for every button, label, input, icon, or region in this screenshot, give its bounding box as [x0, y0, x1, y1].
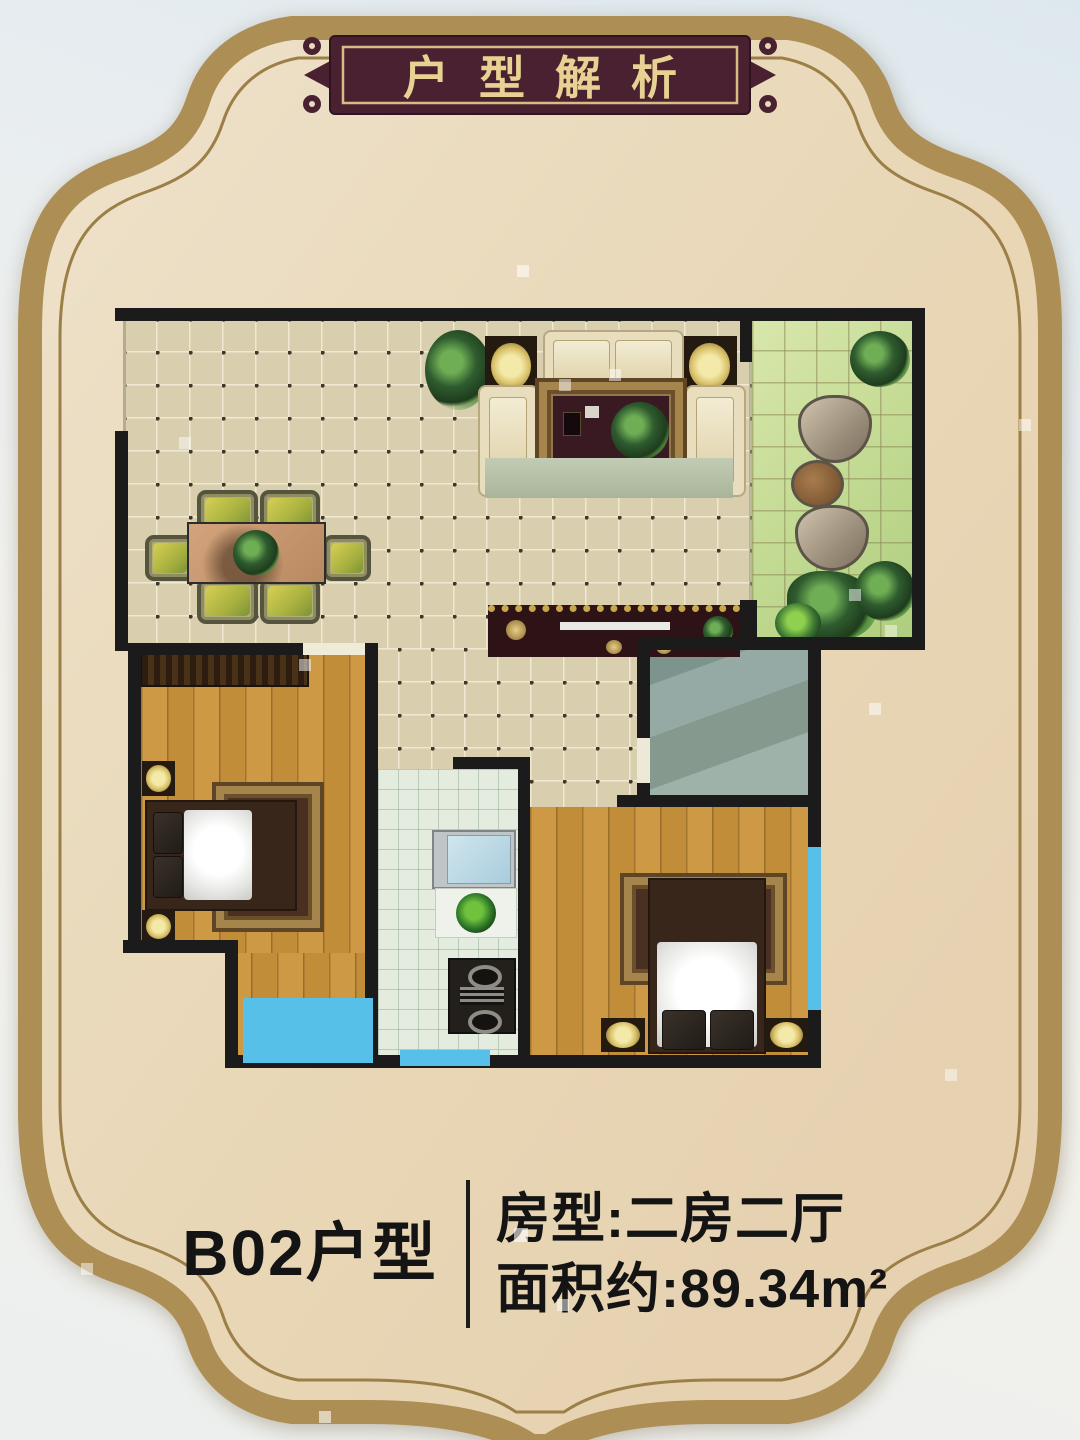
unit-specs: 房型:二房二厅 面积约:89.34m² [496, 1184, 888, 1324]
balcony-plants-icon [855, 561, 915, 621]
wall-balcony-left-stub-bottom [740, 600, 757, 637]
balcony-tree-icon [850, 331, 910, 387]
room-type-label: 房型:二房二厅 [496, 1184, 888, 1254]
wall-lamp [601, 1018, 645, 1052]
window-kitchen [400, 1050, 490, 1066]
wall-lamp [142, 910, 175, 943]
wall-bedroom1-top [128, 643, 303, 655]
dining-chair [260, 578, 320, 624]
info-section: B02户型 房型:二房二厅 面积约:89.34m² [0, 1180, 1080, 1345]
wall-top [115, 308, 925, 321]
wall-lamp [765, 1018, 808, 1052]
coffee-table-plant-icon [611, 402, 669, 460]
coffee-table-items [563, 412, 581, 436]
wall-balcony-bottom [637, 637, 925, 650]
kitchen-sink [432, 830, 516, 889]
wall-bathroom-left-upper [637, 648, 650, 738]
room-bathroom [637, 648, 808, 795]
photo-of-floorplan-card: 户型解析 [0, 0, 1080, 1440]
bed-2 [648, 878, 766, 1054]
window-bedroom1 [243, 998, 373, 1063]
tv-screen [560, 622, 670, 630]
wall-bedroom2-right-lower [808, 1010, 821, 1068]
dining-chair [197, 578, 258, 624]
centerpiece-plant-icon [233, 530, 279, 576]
door-bedroom1 [303, 643, 365, 655]
unit-label: B02户型 [150, 1202, 470, 1294]
wall-step-horizontal [123, 940, 238, 953]
dining-table [187, 522, 326, 584]
tv-platform [485, 458, 733, 498]
kitchen-plant-icon [456, 893, 496, 933]
wall-kitchen-right [518, 757, 530, 1068]
balcony-threshold-line [749, 362, 752, 600]
wardrobe [140, 652, 309, 687]
area-label: 面积约:89.34m² [496, 1254, 888, 1324]
page-title: 户型解析 [330, 36, 750, 114]
wall-left [115, 431, 128, 651]
window-edge-left [123, 321, 126, 431]
bed-1 [145, 800, 297, 911]
wall-balcony-left-stub-top [740, 310, 752, 362]
wall-lamp [142, 761, 175, 796]
wall-right-top [912, 308, 925, 650]
bed-1-pillow [153, 812, 183, 854]
wall-bedroom2-right-upper [808, 808, 821, 848]
bed-2-pillow [662, 1010, 706, 1050]
floor-plan [115, 303, 925, 1093]
kitchen-counter [435, 888, 517, 938]
wall-bathroom-right [808, 648, 821, 808]
dining-chair [323, 535, 371, 581]
stepping-stone-round [791, 460, 844, 508]
wall-kitchen-top [453, 757, 518, 769]
wall-step-vertical [225, 940, 238, 1063]
title-plaque: 户型解析 [298, 30, 782, 120]
window-bedroom2 [808, 847, 821, 1010]
divider-line [466, 1180, 470, 1328]
wall-bedroom1-left [128, 651, 141, 953]
wall-bedroom2-top [617, 795, 813, 807]
bed-2-pillow [710, 1010, 754, 1050]
bed-1-duvet [184, 810, 252, 900]
photo-noise-speckles [0, 0, 6, 6]
door-bathroom [637, 738, 650, 783]
kitchen-stove [448, 958, 516, 1034]
bed-1-pillow [153, 856, 183, 898]
